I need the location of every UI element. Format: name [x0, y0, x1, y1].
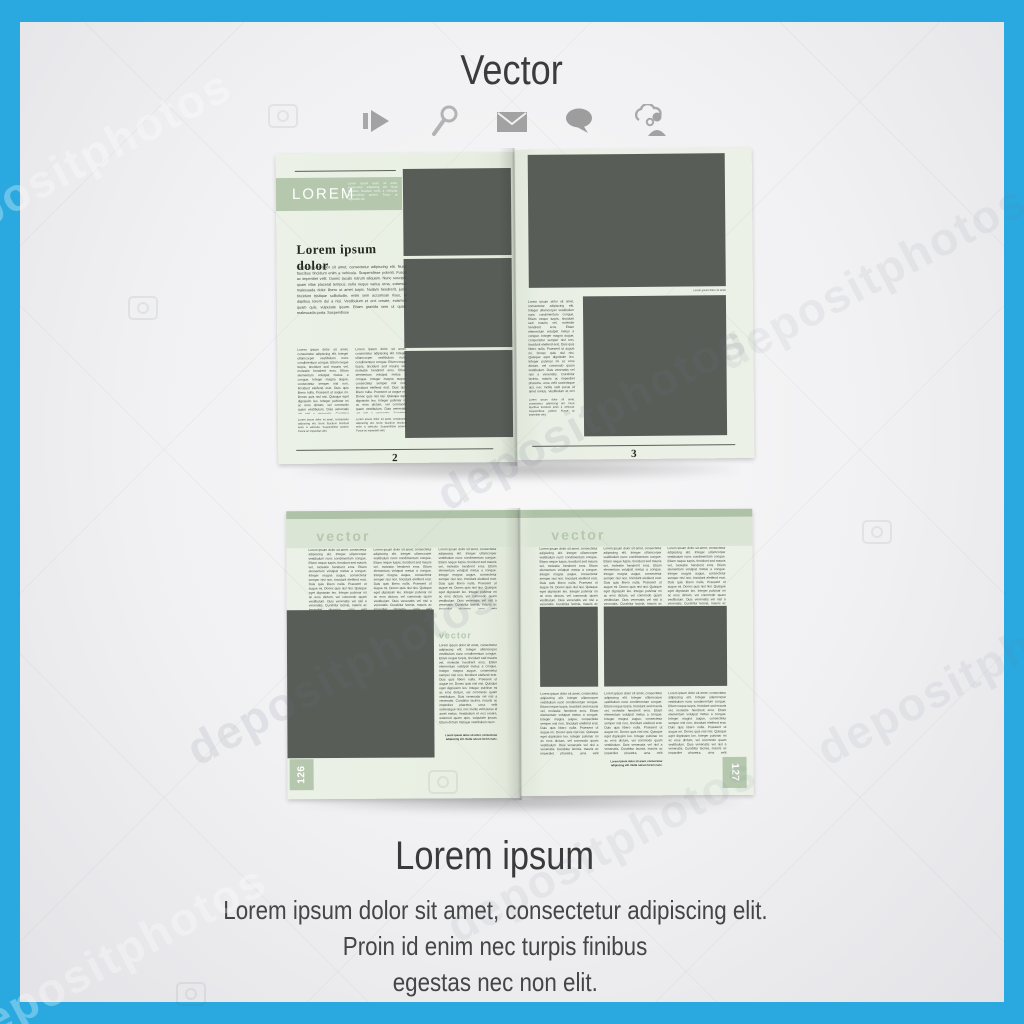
page-number: 2 — [296, 451, 493, 465]
icon-row — [0, 100, 1024, 144]
text-column: Lorem ipsum dolor sit amet, consectetur … — [528, 299, 575, 393]
text-column: Lorem ipsum dolor sit amet, consectetur … — [603, 546, 661, 608]
footer-heading: Lorem ipsum — [0, 834, 990, 879]
footer-line: Lorem ipsum dolor sit amet, consectetur … — [223, 892, 767, 928]
magazine-logo-small: vector — [439, 630, 472, 640]
page-title: Vector — [0, 46, 1024, 94]
stock-image-canvas: Vector LOREM — [0, 0, 1024, 1024]
text-column: Lorem ipsum dolor sit amet, consectetur … — [297, 347, 349, 413]
search-icon — [425, 104, 463, 140]
magazine-spread-top: LOREM Lorem ipsum dolor sit amet, consec… — [274, 146, 757, 468]
chat-icon — [561, 104, 599, 140]
banner-intro-text: Lorem ipsum dolor sit amet, consectetur … — [348, 181, 398, 207]
magazine-spread-bottom: vector Lorem ipsum dolor sit amet, conse… — [286, 507, 754, 801]
footer-line: egestas nec non elit. — [392, 964, 597, 1000]
page-number: 126 — [296, 766, 307, 784]
border-bottom — [0, 1002, 1024, 1024]
photo-placeholder — [540, 607, 598, 687]
article-banner: LOREM Lorem ipsum dolor sit amet, consec… — [276, 177, 402, 211]
page-number-box: 127 — [723, 757, 747, 788]
page-number: 127 — [729, 763, 740, 781]
page-number-box: 126 — [290, 759, 314, 790]
magazine-page-2: LOREM Lorem ipsum dolor sit amet, consec… — [276, 152, 518, 464]
photo-placeholder — [604, 606, 727, 687]
caption: Lorem ipsum dolor sit amet, consectetur … — [356, 417, 407, 441]
page-number: 3 — [532, 447, 735, 461]
text-column: Lorem ipsum dolor sit amet, consectetur … — [668, 691, 726, 754]
text-column: Lorem ipsum dolor sit amet, consectetur … — [540, 692, 598, 755]
magazine-page-127: vector Lorem ipsum dolor sit amet, conse… — [519, 509, 753, 796]
banner-title: LOREM — [276, 185, 355, 203]
text-column: Lorem ipsum dolor sit amet, consectetur … — [373, 547, 431, 609]
text-column: Lorem ipsum dolor sit amet, consectetur … — [355, 347, 407, 413]
photo-placeholder — [287, 609, 435, 758]
caption-bold: Lorem ipsum dolor sit amet, consectetur … — [605, 759, 663, 785]
caption-bold: Lorem ipsum dolor sit amet, consectetur … — [434, 733, 497, 759]
caption: Lorem ipsum dolor sit amet, consectetur … — [529, 397, 575, 423]
footer-line: Proin id enim nec turpis finibus — [343, 928, 647, 964]
photo-placeholder — [528, 153, 726, 288]
photo-placeholder — [583, 295, 727, 436]
border-left — [0, 22, 20, 1002]
article-intro: Lorem ipsum dolor sit amet, consectetur … — [297, 264, 408, 343]
play-icon — [357, 104, 395, 140]
footer-paragraph: Lorem ipsum dolor sit amet, consectetur … — [0, 892, 990, 1000]
magazine-logo: vector — [316, 528, 370, 544]
caption: Lorem ipsum dolor sit amet, consectetur … — [298, 417, 349, 441]
border-top — [0, 0, 1024, 22]
page-title-text: Vector — [461, 46, 563, 94]
text-column: Lorem ipsum dolor sit amet, consectetur … — [438, 547, 496, 609]
text-column: Lorem ipsum dolor sit amet, consectetur … — [604, 691, 662, 754]
magazine-page-126: vector Lorem ipsum dolor sit amet, conse… — [286, 510, 521, 799]
cloud-user-icon — [629, 104, 667, 140]
text-column: Lorem ipsum dolor sit amet, consectetur … — [539, 547, 597, 609]
text-column: Lorem ipsum dolor sit amet, consectetur … — [439, 643, 497, 725]
photo-placeholder — [404, 258, 513, 348]
text-column: Lorem ipsum dolor sit amet, consectetur … — [308, 548, 366, 610]
divider — [295, 170, 396, 172]
magazine-logo: vector — [551, 527, 605, 543]
mail-icon — [493, 104, 531, 140]
text-column: Lorem ipsum dolor sit amet, consectetur … — [667, 546, 725, 608]
border-right — [1004, 22, 1024, 1002]
photo-placeholder — [403, 168, 512, 256]
magazine-page-3: Lorem ipsum dolor sit amet Lorem ipsum d… — [515, 148, 755, 460]
photo-placeholder — [404, 350, 513, 438]
